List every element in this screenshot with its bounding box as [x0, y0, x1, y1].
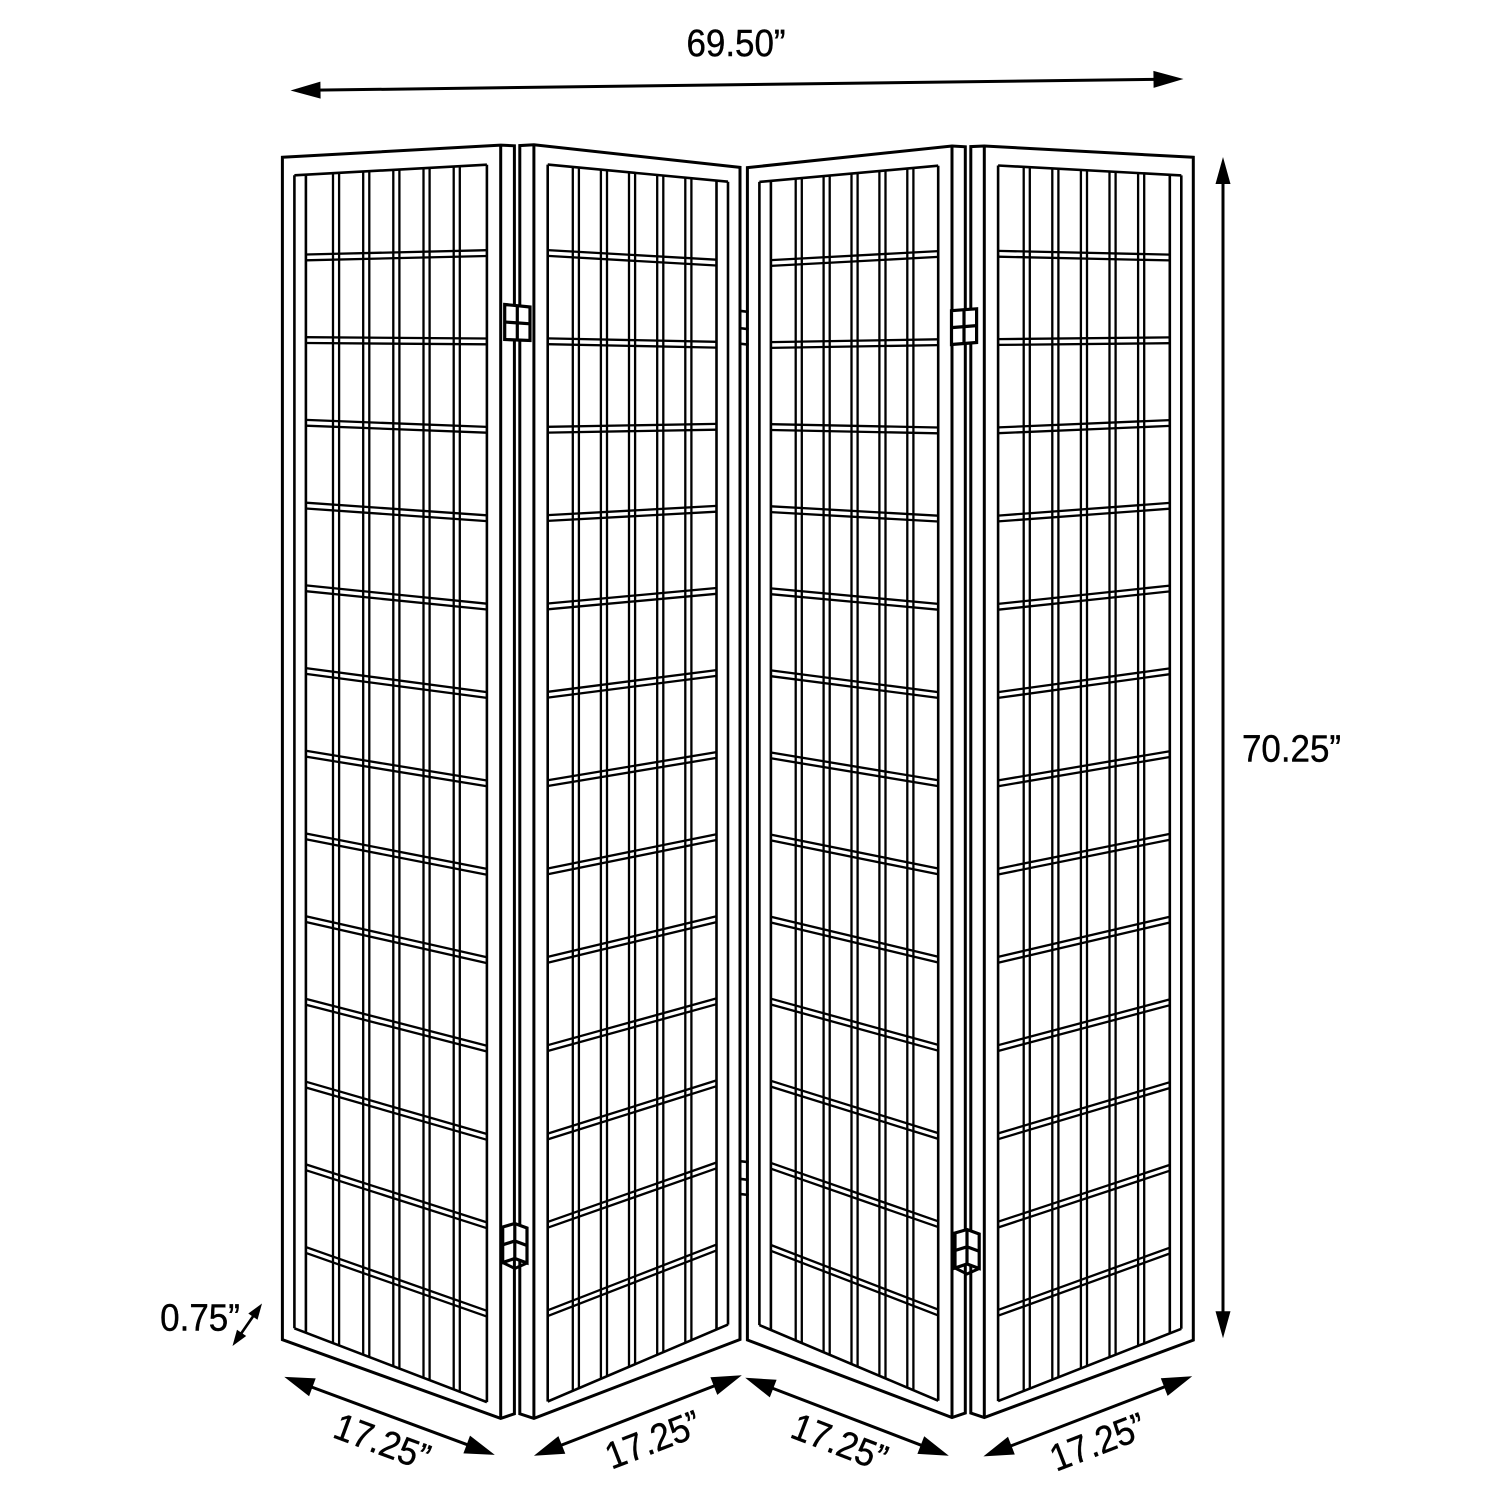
svg-text:69.50”: 69.50”: [686, 22, 785, 65]
svg-text:0.75”: 0.75”: [160, 1296, 240, 1339]
svg-text:70.25”: 70.25”: [1242, 727, 1341, 770]
